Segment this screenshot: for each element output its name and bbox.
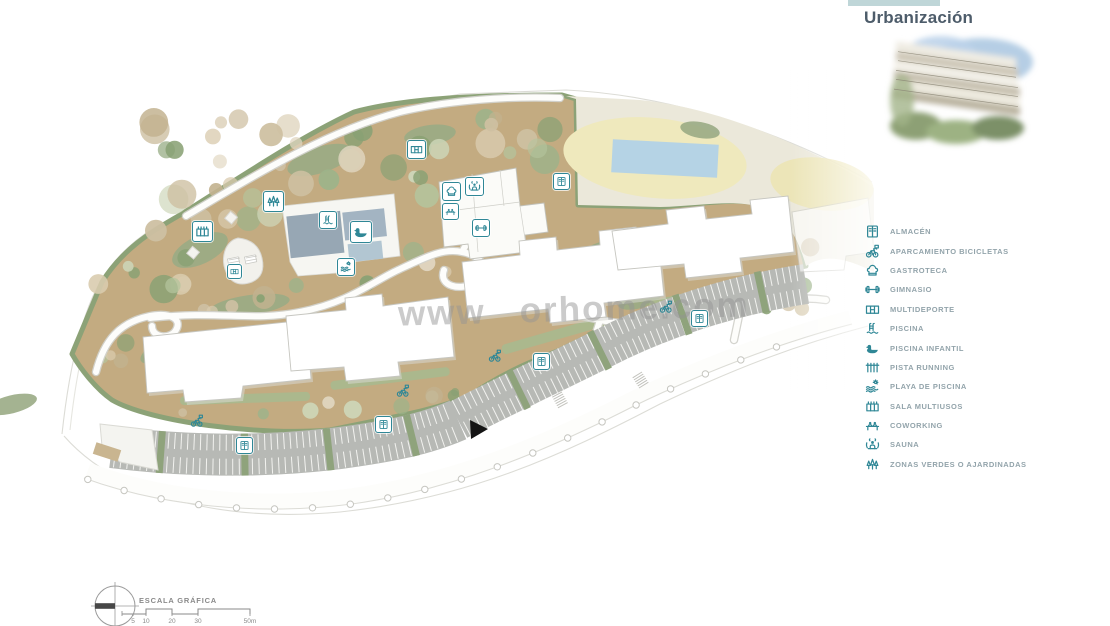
gastroteca-icon [864,262,881,279]
legend-item-coworking: COWORKING [864,416,1104,435]
map-badge-gimnasio [472,219,490,237]
info-panel: Urbanización ALMACÉNAPARCAMIENTO BICICLE… [862,0,1108,626]
legend-item-piscina: PISCINA [864,319,1104,338]
outdoor-pool [611,139,719,178]
scale-tick: 50m [244,618,257,625]
zonas-verdes-icon [864,456,881,473]
map-badge-almacen [236,437,253,454]
page-title: Urbanización [864,8,973,28]
map-badge-sauna [465,177,484,196]
map-badge-sala-multiusos [192,221,213,242]
legend-item-label: PISCINA INFANTIL [890,344,964,353]
scale-tick: 20 [168,618,176,625]
legend-item-piscina-infantil: PISCINA INFANTIL [864,338,1104,357]
legend-item-multideporte: MULTIDEPORTE [864,300,1104,319]
legend-item-label: PISTA RUNNING [890,363,955,372]
map-badge-almacen [691,310,708,327]
legend-item-zonas-verdes: ZONAS VERDES O AJARDINADAS [864,455,1104,474]
multideporte-icon [864,301,881,318]
bicycle-parking-icon [864,243,881,260]
scale-tick: 5 [131,618,135,625]
map-badge-zonas-verdes [263,191,284,212]
map-badge-aparcamiento-bicicletas [190,414,205,429]
legend-item-label: MULTIDEPORTE [890,305,955,314]
scale-bar: 510203050m [122,609,256,625]
legend-item-sauna: SAUNA [864,435,1104,454]
legend-item-almacen: ALMACÉN [864,222,1104,241]
corner-parcel [93,424,158,470]
map-badge-multideporte [407,140,426,159]
map-badge-almacen [553,173,570,190]
map-badge-gastroteca [442,182,461,201]
map-badge-piscina-infantil [350,221,372,243]
legend-item-label: APARCAMIENTO BICICLETAS [890,247,1009,256]
map-badge-aparcamiento-bicicletas [488,349,503,364]
map-badge-almacen [533,353,550,370]
legend-item-label: SAUNA [890,440,919,449]
legend-item-sala-multiusos: SALA MULTIUSOS [864,397,1104,416]
accent-bar [848,0,940,6]
legend-item-label: GIMNASIO [890,285,932,294]
scale-tick: 10 [142,618,150,625]
legend-item-label: COWORKING [890,421,943,430]
map-badge-coworking [442,203,459,220]
piscina-icon [864,320,881,337]
legend-item-label: SALA MULTIUSOS [890,402,963,411]
pista-running-icon [864,359,881,376]
legend: ALMACÉNAPARCAMIENTO BICICLETASGASTROTECA… [864,222,1104,474]
legend-item-label: ZONAS VERDES O AJARDINADAS [890,460,1027,469]
almacen-icon [864,223,881,240]
legend-item-label: PLAYA DE PISCINA [890,382,967,391]
map-badge-multideporte [227,264,242,279]
legend-item-pista-running: PISTA RUNNING [864,358,1104,377]
legend-item-bicycle-parking: APARCAMIENTO BICICLETAS [864,241,1104,260]
map-badge-aparcamiento-bicicletas [659,300,674,315]
map-badge-piscina [319,211,337,229]
legend-item-label: GASTROTECA [890,266,948,275]
map-badge-aparcamiento-bicicletas [396,384,411,399]
coworking-icon [864,417,881,434]
legend-item-gimnasio: GIMNASIO [864,280,1104,299]
piscina-infantil-icon [864,340,881,357]
legend-item-playa-de-piscina: PLAYA DE PISCINA [864,377,1104,396]
legend-item-label: ALMACÉN [890,227,931,236]
site-plan-page: 510203050m www orhome.com Urbanización A… [0,0,1110,626]
playa-de-piscina-icon [864,378,881,395]
map-badge-playa-de-piscina [337,258,355,276]
scale-label: ESCALA GRÁFICA [139,596,217,605]
sauna-icon [864,436,881,453]
scale-tick: 30 [194,618,202,625]
sala-multiusos-icon [864,398,881,415]
legend-item-label: PISCINA [890,324,924,333]
map-badge-almacen [375,416,392,433]
legend-item-gastroteca: GASTROTECA [864,261,1104,280]
gimnasio-icon [864,281,881,298]
